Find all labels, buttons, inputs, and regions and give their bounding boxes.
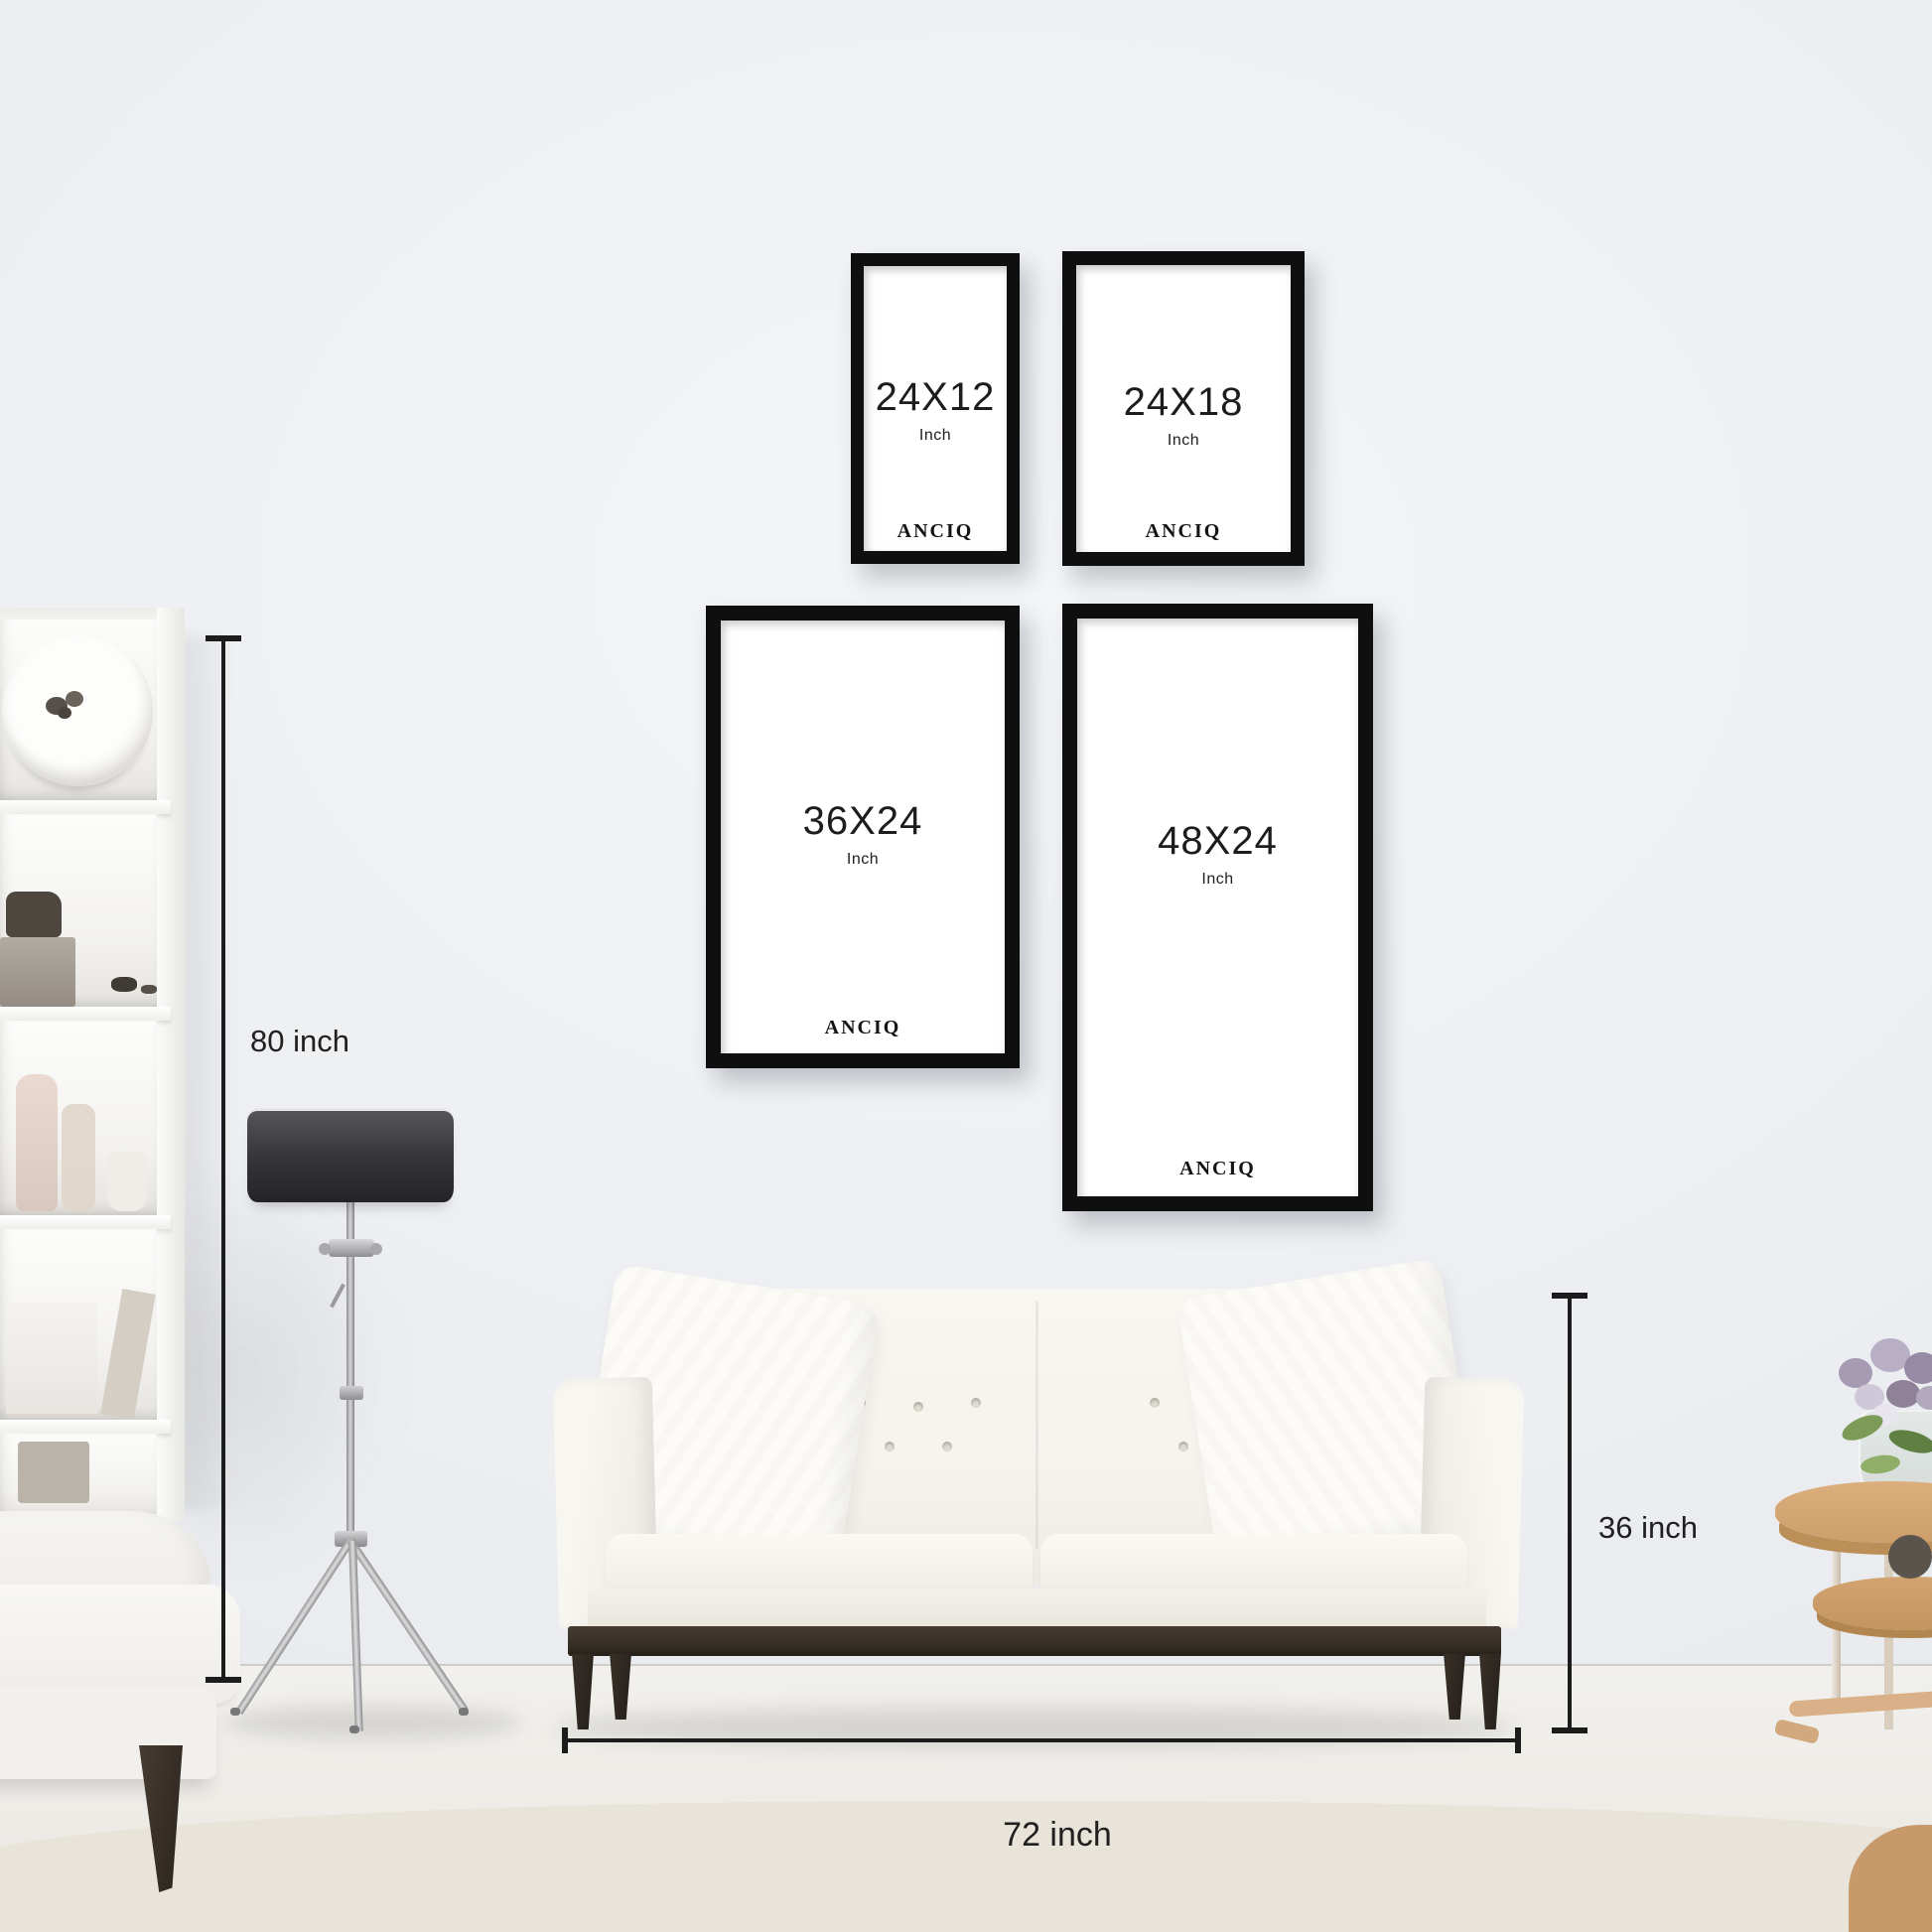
frame-size-block: 48X24 Inch [1077,821,1358,888]
frame-48x24: 48X24 Inch ANCIQ [1062,604,1373,1211]
tufting-button [913,1402,923,1412]
rug [0,1801,1932,1932]
sofa-height-label: 36 inch [1598,1511,1698,1545]
lamp-foot [459,1708,469,1716]
flower [1886,1380,1920,1408]
frame-unit-label: Inch [1076,433,1291,449]
frame-mat: 48X24 Inch ANCIQ [1077,619,1358,1196]
frame-size-label: 48X24 [1077,821,1358,861]
plate-ornament [66,691,83,707]
lamp-shade [247,1108,454,1202]
lamp-collar [340,1386,363,1400]
dimension-end-cap [1552,1727,1587,1733]
lamp-knob [370,1243,382,1255]
shelf-box [0,937,75,1007]
lamp-foot [230,1708,240,1716]
tufting-button [1178,1442,1188,1451]
frame-mat: 36X24 Inch ANCIQ [721,621,1005,1053]
frame-36x24: 36X24 Inch ANCIQ [706,606,1020,1068]
frame-brand-logo: ANCIQ [864,521,1007,541]
glass-bottle [62,1104,95,1211]
sofa-height-dimension-line [1568,1296,1572,1730]
dimension-end-cap [1515,1727,1521,1753]
frame-24x12: 24X12 Inch ANCIQ [851,253,1020,564]
dimension-end-cap [562,1727,568,1753]
decorative-plate [2,635,153,786]
shelf-board [0,1215,171,1229]
flower [1904,1352,1932,1384]
frame-size-label: 24X18 [1076,382,1291,422]
small-vase [107,1152,147,1211]
frame-mat: 24X12 Inch ANCIQ [864,266,1007,551]
frame-24x18: 24X18 Inch ANCIQ [1062,251,1305,566]
shelf-board [0,1420,171,1434]
bookshelf-side-panel [157,608,185,1521]
wall-height-label: 80 inch [250,1025,349,1058]
armchair-base [0,1688,216,1779]
glass-bottle [16,1074,58,1211]
dimension-end-cap [1552,1293,1587,1299]
frame-size-block: 36X24 Inch [721,801,1005,868]
room-scene: 24X12 Inch ANCIQ 24X18 Inch ANCIQ 36X24 … [0,0,1932,1932]
table-ornament [1888,1535,1932,1579]
tufting-button [1150,1398,1160,1408]
frame-mat: 24X18 Inch ANCIQ [1076,265,1291,552]
sofa-width-label: 72 inch [973,1817,1142,1854]
lamp-foot [349,1725,359,1733]
shelf-board [0,800,171,814]
sofa-back-seam [1035,1301,1038,1549]
wall-height-dimension-line [221,638,225,1680]
shelf-trinket [141,985,157,994]
lamp-joint [329,1239,374,1257]
lamp-knob [319,1243,331,1255]
shelf-trinket [111,977,137,992]
frame-size-block: 24X18 Inch [1076,382,1291,449]
dimension-end-cap [206,635,241,641]
storage-box [6,1303,97,1418]
tufting-button [971,1398,981,1408]
frame-brand-logo: ANCIQ [721,1018,1005,1037]
frame-size-label: 36X24 [721,801,1005,841]
armchair-seat [0,1585,240,1704]
frame-unit-label: Inch [1077,872,1358,888]
frame-brand-logo: ANCIQ [1077,1159,1358,1178]
lamp-floor-shadow [223,1706,521,1739]
tufting-button [885,1442,895,1451]
shelf-ornament [6,892,62,937]
dimension-end-cap [206,1677,241,1683]
frame-size-label: 24X12 [864,377,1007,417]
plate-ornament [58,707,71,719]
shelf-item [18,1442,89,1503]
tufting-button [942,1442,952,1451]
frame-unit-label: Inch [721,852,1005,868]
shelf-board [0,1007,171,1021]
sofa-wood-rail [568,1626,1501,1656]
frame-size-block: 24X12 Inch [864,377,1007,444]
frame-unit-label: Inch [864,428,1007,444]
frame-brand-logo: ANCIQ [1076,521,1291,541]
sofa-width-dimension-line [564,1738,1519,1742]
